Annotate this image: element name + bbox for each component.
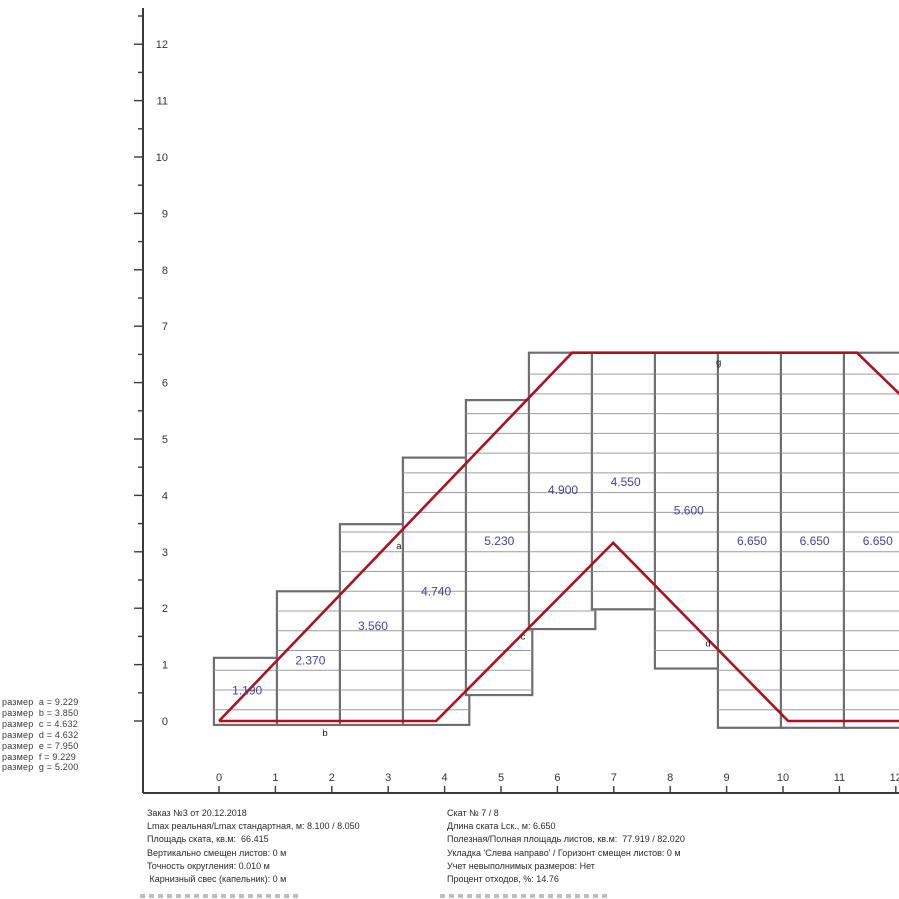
sheet-length-label: 6.650 <box>737 534 767 548</box>
y-axis-label: 5 <box>162 434 168 446</box>
info-line: Процент отходов, %: 14.76 <box>447 873 685 886</box>
y-axis-label: 1 <box>162 660 168 672</box>
x-axis-label: 8 <box>667 772 673 784</box>
sheet-length-label: 6.650 <box>800 534 830 548</box>
roof-layout-page: 012345678910111201234567891011121.1902.3… <box>0 0 899 899</box>
sheet-length-label: 6.650 <box>863 534 893 548</box>
sheet-length-label: 4.740 <box>421 584 451 598</box>
sheet-length-label: 1.190 <box>232 684 262 698</box>
info-line: Вертикально смещен листов: 0 м <box>147 847 360 860</box>
legend-row: размер a = 9.229 <box>2 697 78 708</box>
info-line: Карнизный свес (капельник): 0 м <box>147 873 360 886</box>
x-axis-label: 1 <box>272 772 278 784</box>
dimension-legend: размер a = 9.229размер b = 3.850размер c… <box>2 697 78 773</box>
x-axis-label: 10 <box>777 772 789 784</box>
legend-row: размер f = 9.229 <box>2 752 78 763</box>
info-line: Скат № 7 / 8 <box>447 807 685 820</box>
y-axis-label: 2 <box>162 603 168 615</box>
roof-sheet-chart: 012345678910111201234567891011121.1902.3… <box>0 0 899 899</box>
sheet-length-label: 4.900 <box>548 483 578 497</box>
sheet-length-label: 4.550 <box>611 475 641 489</box>
y-axis-label: 8 <box>162 265 168 277</box>
info-line: Укладка 'Слева направо' / Горизонт смеще… <box>447 847 685 860</box>
legend-row: размер e = 7.950 <box>2 741 78 752</box>
x-axis-label: 0 <box>216 772 222 784</box>
x-axis-label: 11 <box>834 772 845 784</box>
x-axis-label: 6 <box>554 772 560 784</box>
info-panel-right: Скат № 7 / 8Длина ската Lск., м: 6.650По… <box>447 807 685 886</box>
edge-letter-label: a <box>396 541 402 552</box>
x-axis-label: 5 <box>498 772 504 784</box>
truncated-text-row-left <box>140 894 300 898</box>
edge-letter-label: g <box>716 357 721 368</box>
sheet-columns <box>214 353 899 728</box>
edge-letter-label: b <box>322 728 327 739</box>
info-line: Lmax реальная/Lmax стандартная, м: 8.100… <box>147 820 360 833</box>
sheet-length-label: 3.560 <box>358 619 388 633</box>
x-axis-label: 7 <box>611 772 617 784</box>
x-axis-label: 2 <box>329 772 335 784</box>
x-axis-label: 3 <box>385 772 391 784</box>
x-axis-label: 12 <box>890 772 899 784</box>
sheet-length-label: 5.600 <box>674 504 704 518</box>
truncated-text-row-right <box>440 894 610 898</box>
sheet-length-label: 5.230 <box>484 534 514 548</box>
y-axis-label: 12 <box>156 39 168 51</box>
info-line: Площадь ската, кв.м: 66.415 <box>147 833 360 846</box>
legend-row: размер d = 4.632 <box>2 730 78 741</box>
info-line: Учет невыполнимых размеров: Нет <box>447 860 685 873</box>
y-axis-label: 9 <box>162 208 168 220</box>
y-axis-label: 0 <box>162 716 168 728</box>
info-line: Заказ №3 от 20.12.2018 <box>147 807 360 820</box>
x-axis-label: 4 <box>442 772 448 784</box>
x-axis-label: 9 <box>724 772 730 784</box>
y-axis-label: 4 <box>162 490 168 502</box>
info-line: Точность округления: 0.010 м <box>147 860 360 873</box>
legend-row: размер g = 5.200 <box>2 762 78 773</box>
info-line: Полезная/Полная площадь листов, кв.м: 77… <box>447 833 685 846</box>
legend-row: размер b = 3.850 <box>2 708 78 719</box>
edge-letter-label: c <box>521 631 526 642</box>
y-axis-label: 3 <box>162 547 168 559</box>
edge-letter-label: d <box>705 639 710 650</box>
y-axis-label: 7 <box>162 321 168 333</box>
y-axis-label: 11 <box>157 96 168 108</box>
y-axis-label: 6 <box>162 378 168 390</box>
info-line: Длина ската Lск., м: 6.650 <box>447 820 685 833</box>
info-panel-left: Заказ №3 от 20.12.2018Lmax реальная/Lmax… <box>147 807 360 886</box>
y-axis-label: 10 <box>156 152 168 164</box>
legend-row: размер c = 4.632 <box>2 719 78 730</box>
sheet-length-label: 2.370 <box>295 654 325 668</box>
